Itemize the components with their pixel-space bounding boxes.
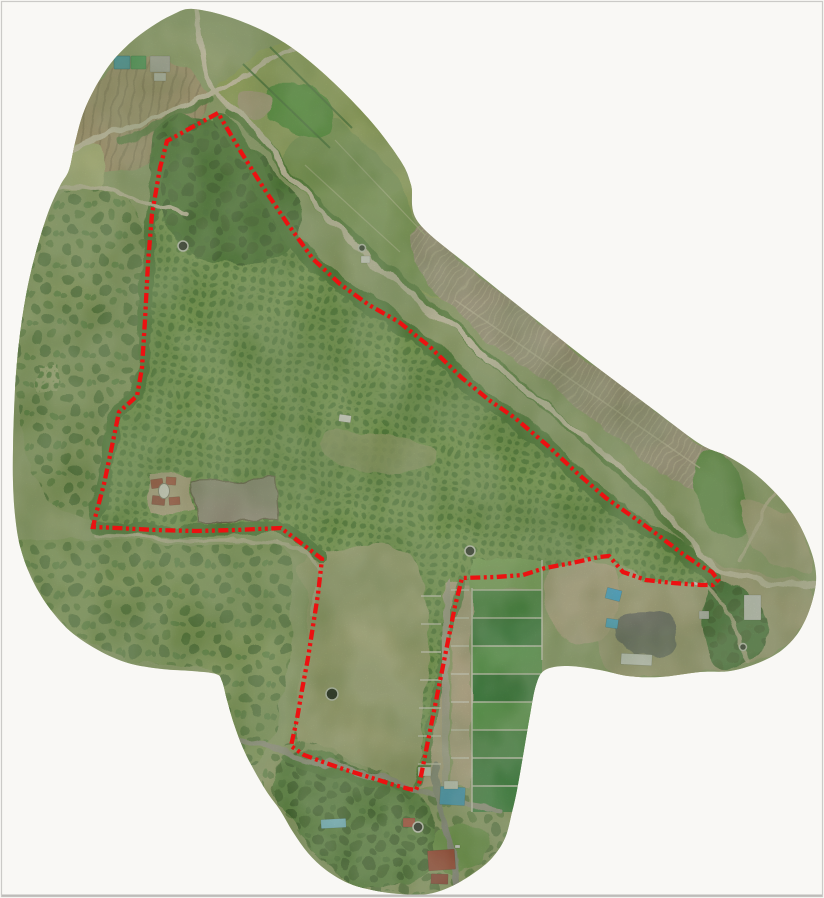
screenshot-frame — [0, 0, 824, 898]
orthomosaic-map — [0, 0, 824, 898]
